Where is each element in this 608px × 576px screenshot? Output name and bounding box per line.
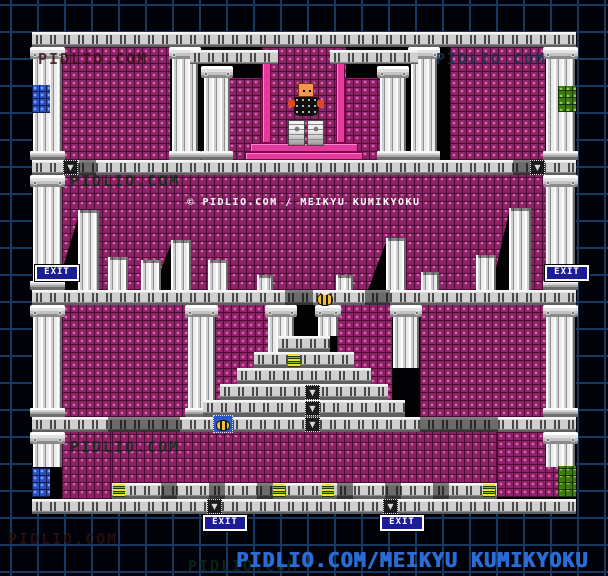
- site-caption: PIDLIO.COM/MEIKYU KUMIKYOKU: [236, 548, 588, 572]
- spring-item: [322, 484, 334, 497]
- brick-wall: [62, 432, 112, 499]
- broken-column: [386, 238, 406, 290]
- hanging-column: [33, 432, 62, 467]
- brick-wall: [62, 305, 188, 417]
- throne-gate-step: [245, 152, 363, 160]
- down-arrow-marker: ▼: [530, 160, 545, 175]
- exit-badge: EXIT: [380, 515, 424, 531]
- boss-arm: [288, 100, 295, 107]
- ledge-platform: [330, 50, 418, 64]
- frieze-band: [32, 499, 576, 514]
- pedestal-block: [307, 120, 324, 146]
- shadow-tile: [365, 290, 390, 305]
- shadow-tile: [161, 483, 177, 499]
- column: [393, 305, 419, 368]
- bee-wing: [321, 291, 329, 295]
- castle-map: ▼ ▼ EXIT EXIT: [32, 32, 576, 514]
- green-brick-patch: [558, 466, 576, 497]
- pedestal: [287, 120, 325, 146]
- exit-badge: EXIT: [203, 515, 247, 531]
- pyramid-tier: [254, 352, 354, 368]
- shadow-tile: [513, 160, 530, 175]
- down-arrow-marker: ▼: [63, 160, 78, 175]
- blue-brick-patch: [32, 85, 50, 113]
- down-arrow-marker: ▼: [207, 499, 222, 514]
- shadow-tile: [79, 160, 96, 175]
- pyramid-tier: [203, 400, 405, 417]
- throne-gate-post: [336, 58, 345, 143]
- broken-column: [336, 275, 353, 290]
- boss-sprite: [288, 78, 324, 122]
- pyramid-tier: [220, 384, 388, 400]
- broken-column: [78, 210, 99, 290]
- boss-arm: [317, 100, 324, 107]
- boss-body: [294, 97, 318, 116]
- ledge-platform: [190, 50, 278, 64]
- brick-wall: [62, 47, 170, 160]
- column: [546, 305, 575, 417]
- spring-item: [273, 484, 285, 497]
- frieze-band: [32, 32, 576, 47]
- broken-column: [421, 272, 439, 290]
- pyramid-tier: [237, 368, 371, 384]
- watermark-text: PIDLIO.COM: [8, 530, 118, 548]
- broken-column: [141, 260, 161, 290]
- brick-wall: [62, 175, 546, 290]
- column: [204, 66, 230, 160]
- shadow-tile: [209, 483, 225, 499]
- down-arrow-icon: ▼: [387, 503, 393, 511]
- broken-column: [476, 255, 496, 290]
- spring-item: [113, 484, 125, 497]
- green-brick-patch: [558, 86, 576, 112]
- bee-sprite: [317, 293, 333, 306]
- exit-badge: EXIT: [545, 265, 589, 281]
- shadow-tile: [257, 483, 273, 499]
- exit-badge: EXIT: [35, 265, 79, 281]
- throne-gate-post: [262, 58, 271, 143]
- boss-head: [298, 83, 314, 97]
- spring-item: [288, 354, 300, 367]
- brick-wall: [450, 47, 545, 160]
- down-arrow-icon: ▼: [309, 389, 315, 397]
- brick-wall: [112, 432, 497, 483]
- down-arrow-icon: ▼: [534, 164, 540, 172]
- down-arrow-marker: ▼: [305, 385, 320, 400]
- game-screen: ▼ ▼ EXIT EXIT: [0, 0, 608, 576]
- broken-column: [208, 260, 228, 290]
- copyright-text: © PIDLIO.COM / MEIKYU KUMIKYOKU: [160, 197, 448, 208]
- down-arrow-icon: ▼: [67, 164, 73, 172]
- spring-item: [483, 484, 495, 497]
- broken-column: [108, 257, 128, 290]
- pyramid-tier: [278, 336, 330, 352]
- blue-brick-patch: [32, 468, 50, 497]
- frieze-band: [32, 160, 576, 175]
- down-arrow-icon: ▼: [309, 421, 315, 429]
- down-arrow-marker: ▼: [305, 401, 320, 416]
- broken-column: [171, 240, 191, 290]
- shadow-tile: [337, 483, 353, 499]
- broken-column: [257, 275, 273, 290]
- hanging-column: [546, 432, 575, 467]
- down-arrow-icon: ▼: [309, 405, 315, 413]
- shadow-tile: [108, 417, 180, 432]
- brick-wall: [420, 305, 546, 417]
- pedestal-block: [288, 120, 305, 146]
- shadow-tile: [285, 290, 313, 305]
- down-arrow-marker: ▼: [305, 417, 320, 432]
- column: [380, 66, 406, 160]
- column: [318, 305, 338, 336]
- shadow-tile: [385, 483, 401, 499]
- column: [33, 305, 62, 417]
- bee-sprite: [216, 420, 230, 431]
- down-arrow-marker: ▼: [383, 499, 398, 514]
- shadow-tile: [420, 417, 498, 432]
- item-box: [213, 415, 233, 433]
- down-arrow-icon: ▼: [211, 503, 217, 511]
- shadow-tile: [433, 483, 449, 499]
- broken-column: [509, 208, 531, 290]
